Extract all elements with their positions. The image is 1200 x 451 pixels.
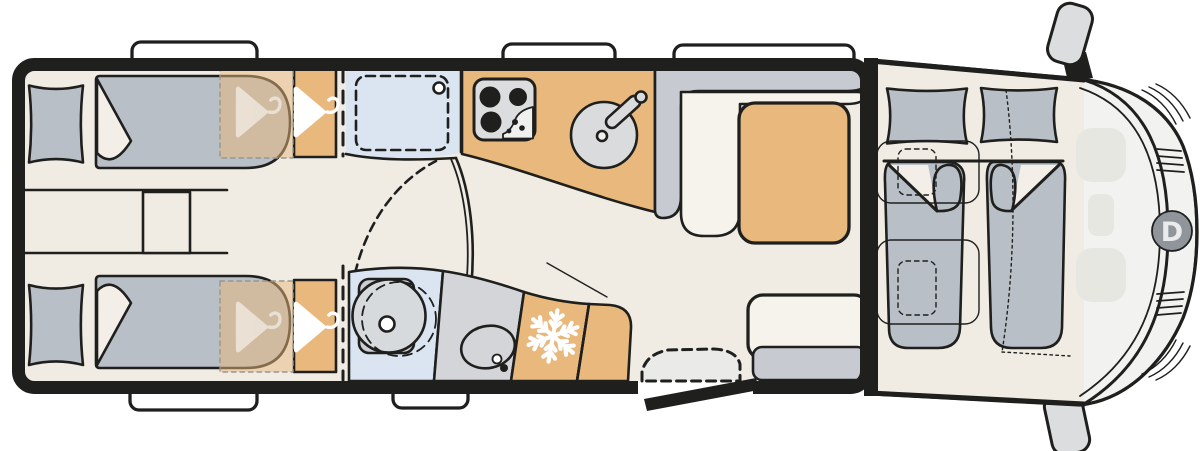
floorplan-image: D bbox=[0, 0, 1200, 451]
shower-room bbox=[346, 66, 461, 159]
cab-console bbox=[1088, 194, 1114, 236]
duvet-roll-cab-left bbox=[934, 165, 962, 211]
cab-seat-driver bbox=[1076, 128, 1126, 182]
toilet-flush bbox=[380, 317, 395, 332]
shower-floor bbox=[346, 66, 461, 159]
pillow-top-bed bbox=[29, 86, 83, 163]
shower-drain bbox=[434, 83, 445, 94]
basin-drain bbox=[493, 355, 502, 364]
entry-step bbox=[642, 349, 740, 381]
basin-tap bbox=[500, 364, 508, 372]
dinette bbox=[655, 67, 869, 243]
pillow-cab-right bbox=[981, 88, 1057, 142]
sink-drain bbox=[597, 131, 607, 141]
brand-logo: D bbox=[1152, 211, 1192, 251]
logo-letter: D bbox=[1161, 217, 1183, 248]
travel-bench bbox=[748, 295, 869, 380]
duvet-roll-cab-right bbox=[991, 165, 1016, 211]
plan-root: D bbox=[0, 0, 1200, 451]
dinette-table bbox=[739, 103, 849, 243]
pillow-cab-left bbox=[887, 89, 967, 144]
pillow-bottom-bed bbox=[29, 285, 83, 365]
bench-seat bbox=[753, 347, 866, 380]
cab-seat-passenger bbox=[1076, 248, 1126, 302]
bedside-cabinet bbox=[143, 192, 190, 253]
faucet-head bbox=[636, 92, 647, 103]
floorplan-svg: D bbox=[0, 0, 1200, 451]
